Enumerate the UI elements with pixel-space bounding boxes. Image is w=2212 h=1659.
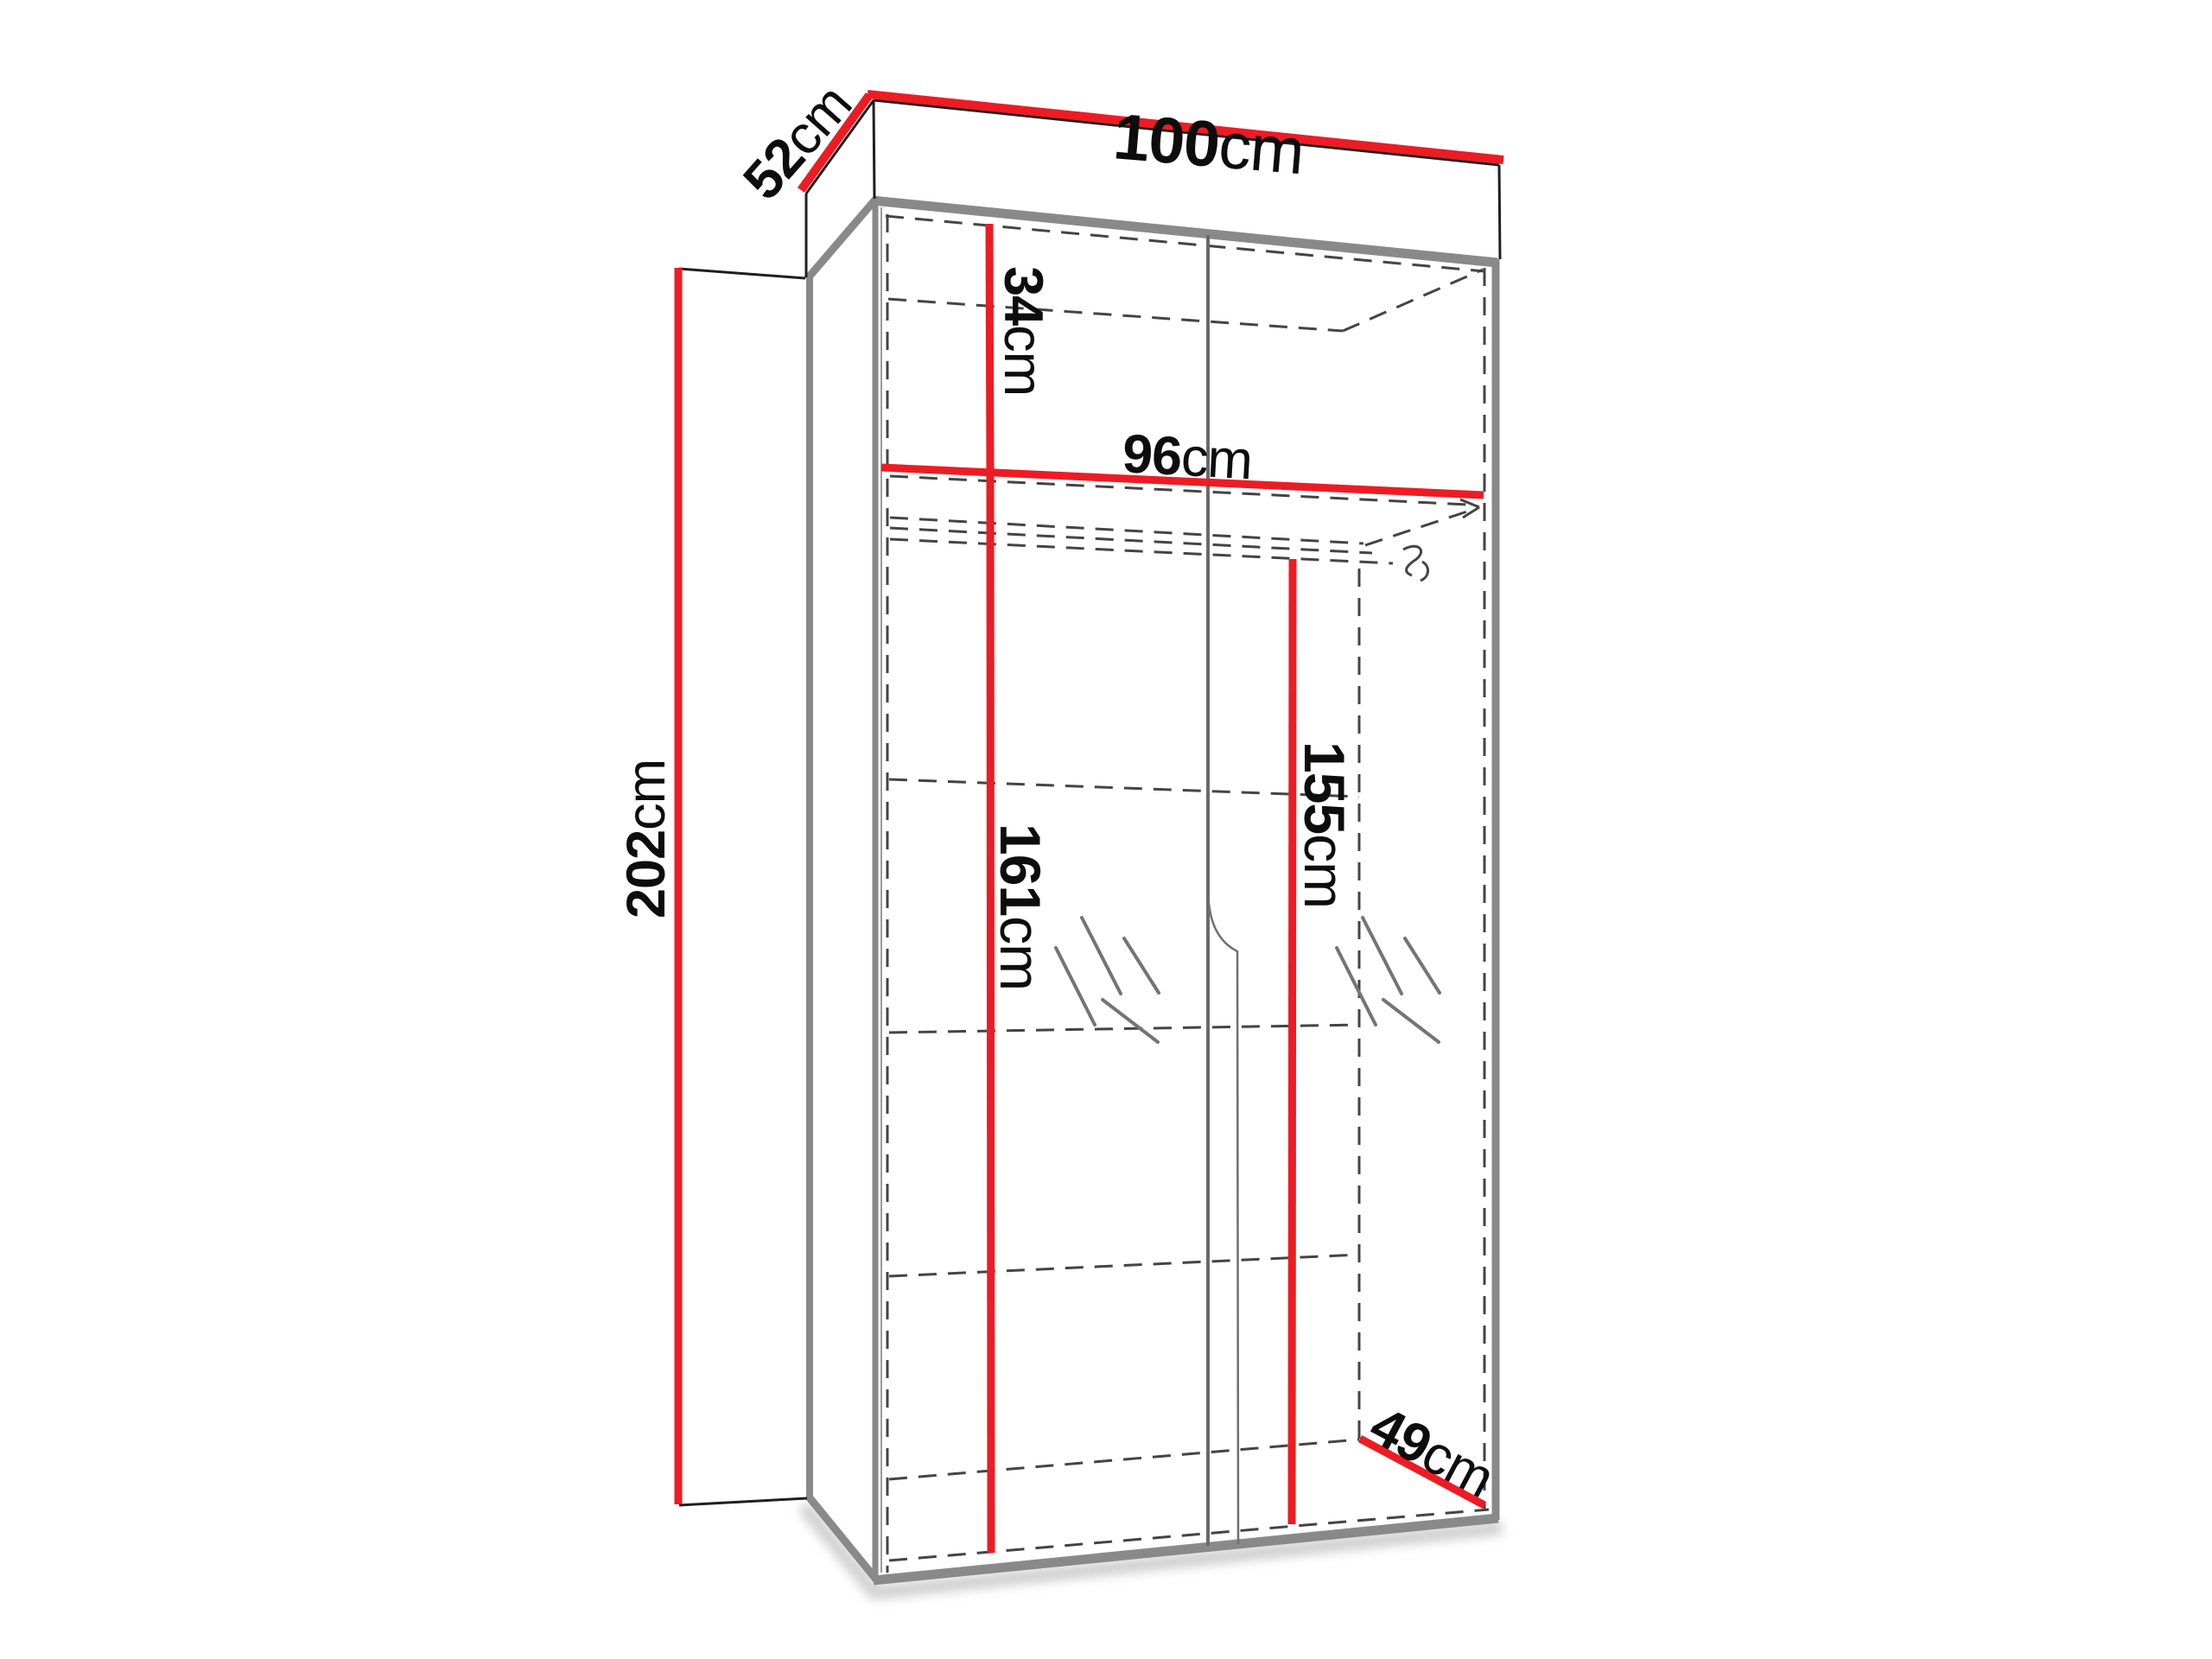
diagram-canvas: 100cm 52cm 202cm 34cm 96cm 161cm 155cm 4… xyxy=(0,0,2212,1659)
top-section-label: 34cm xyxy=(993,266,1053,396)
height-unit: cm xyxy=(616,760,677,830)
width-unit: cm xyxy=(1216,108,1306,188)
wardrobe-dimension-diagram: 100cm 52cm 202cm 34cm 96cm 161cm 155cm 4… xyxy=(0,0,2212,1659)
top-back-left-short-edge xyxy=(874,100,874,199)
left-interior-label: 161cm xyxy=(988,823,1052,990)
dimension-line-left-interior-161 xyxy=(990,474,991,1553)
right-interior-value: 155 xyxy=(1293,741,1357,834)
interior-width-unit: cm xyxy=(1179,427,1254,491)
right-interior-unit: cm xyxy=(1293,834,1357,908)
height-value: 202 xyxy=(616,830,677,918)
right-interior-label: 155cm xyxy=(1293,741,1357,908)
interior-width-label: 96cm xyxy=(1121,423,1254,491)
top-right-short-edge xyxy=(1499,165,1500,259)
dimension-line-top-34 xyxy=(989,224,990,474)
background xyxy=(0,0,2212,1659)
height-label: 202cm xyxy=(616,760,677,918)
top-section-unit: cm xyxy=(993,325,1053,396)
top-section-value: 34 xyxy=(993,266,1053,326)
interior-width-value: 96 xyxy=(1121,423,1183,487)
width-value: 100 xyxy=(1111,99,1223,181)
left-interior-value: 161 xyxy=(988,823,1052,916)
left-interior-unit: cm xyxy=(988,916,1052,990)
dimension-line-right-interior-155 xyxy=(1292,559,1293,1524)
